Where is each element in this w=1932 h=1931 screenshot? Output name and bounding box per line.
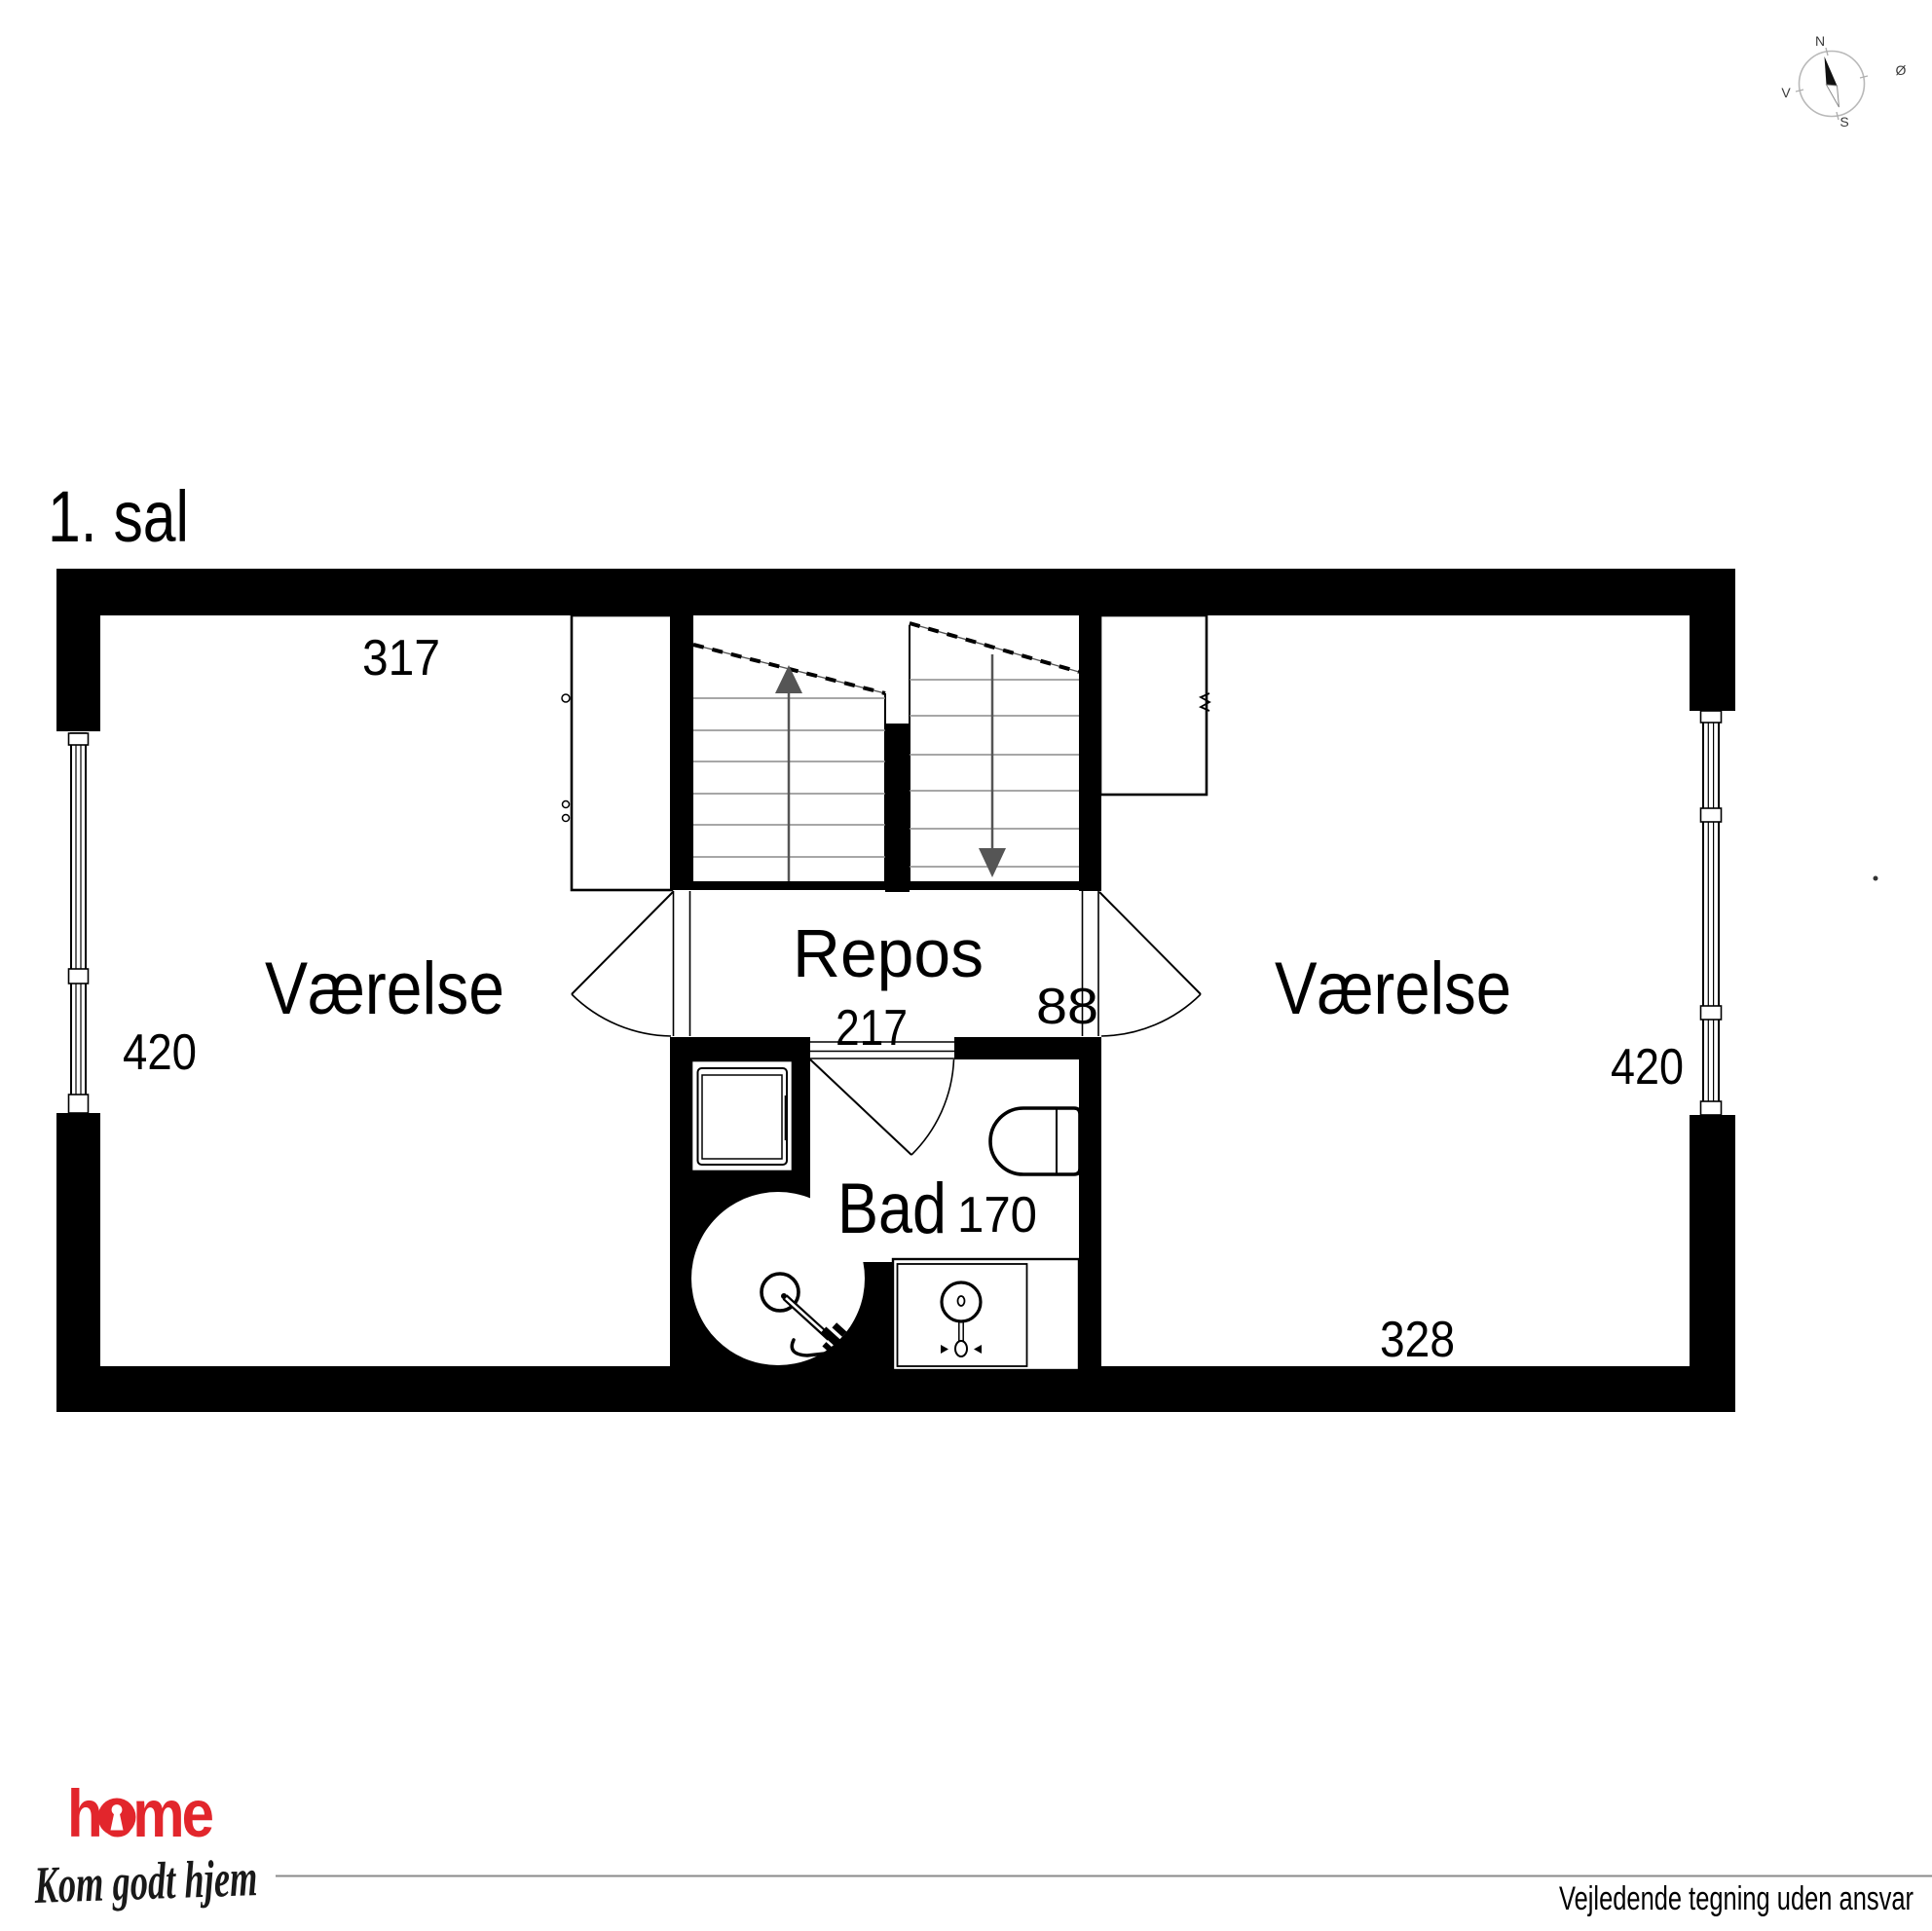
svg-text:Værelse: Værelse (265, 947, 504, 1030)
svg-text:Repos: Repos (793, 915, 984, 991)
svg-text:Ø: Ø (1896, 62, 1907, 78)
svg-text:1. sal: 1. sal (48, 476, 189, 557)
svg-text:170: 170 (957, 1187, 1037, 1244)
svg-text:Kom godt hjem: Kom godt hjem (33, 1848, 259, 1914)
svg-text:Vejledende tegning uden ansvar: Vejledende tegning uden ansvar (1559, 1880, 1913, 1917)
svg-text:217: 217 (836, 1000, 908, 1057)
svg-text:328: 328 (1380, 1312, 1455, 1368)
svg-text:317: 317 (362, 630, 440, 687)
svg-text:88: 88 (1036, 979, 1098, 1035)
svg-text:V: V (1781, 85, 1791, 100)
svg-text:S: S (1839, 114, 1848, 130)
svg-text:Værelse: Værelse (1275, 947, 1511, 1030)
svg-text:N: N (1815, 33, 1825, 49)
svg-text:420: 420 (123, 1024, 197, 1081)
svg-text:Bad: Bad (837, 1170, 947, 1248)
svg-text:home: home (67, 1775, 212, 1851)
svg-text:420: 420 (1611, 1039, 1684, 1095)
